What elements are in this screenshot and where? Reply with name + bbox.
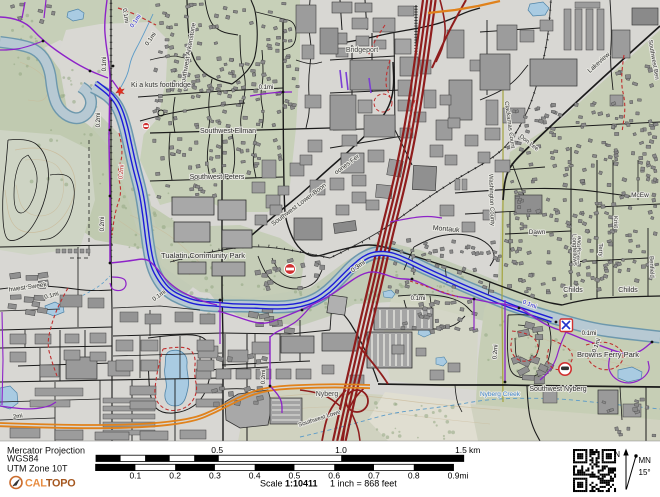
svg-text:Krist: Krist [612, 216, 618, 229]
svg-text:UTM Zone 10T: UTM Zone 10T [7, 464, 68, 474]
svg-text:Southwest Nyberg: Southwest Nyberg [529, 386, 586, 393]
svg-text:0.2mi: 0.2mi [118, 164, 125, 179]
svg-text:1.0: 1.0 [335, 445, 347, 455]
svg-text:0.3: 0.3 [209, 471, 221, 481]
svg-text:Browns Ferry Park: Browns Ferry Park [577, 350, 639, 359]
svg-text:km: km [469, 445, 480, 455]
svg-text:1 inch = 868 feet: 1 inch = 868 feet [330, 479, 397, 489]
svg-text:N: N [614, 450, 620, 459]
svg-text:Childs: Childs [563, 287, 583, 294]
svg-text:Childs: Childs [618, 287, 638, 294]
svg-text:Benfield: Benfield [648, 256, 655, 278]
svg-text:McEw: McEw [631, 192, 649, 199]
svg-text:Bridgeport: Bridgeport [346, 47, 378, 54]
svg-text:0.2mi: 0.2mi [100, 217, 106, 232]
svg-text:0.5: 0.5 [211, 445, 223, 455]
svg-text:0.1: 0.1 [129, 471, 141, 481]
svg-text:0.2mi: 0.2mi [261, 370, 268, 385]
svg-text:Longfellows: Longfellows [570, 234, 577, 266]
svg-text:Ki a kuts footbridge: Ki a kuts footbridge [131, 82, 191, 89]
svg-text:Terry: Terry [597, 243, 603, 257]
svg-text:Dawn: Dawn [529, 229, 546, 236]
svg-text:Nyberg: Nyberg [316, 391, 339, 398]
svg-text:mi: mi [460, 471, 469, 481]
svg-text:Tualatin Community Park: Tualatin Community Park [161, 251, 245, 260]
svg-text:Nyberg Creek: Nyberg Creek [480, 391, 521, 398]
svg-text:1.5: 1.5 [455, 445, 467, 455]
svg-text:Southwest Peters: Southwest Peters [190, 174, 245, 181]
svg-text:0.9: 0.9 [448, 471, 460, 481]
svg-text:0.1mi: 0.1mi [411, 296, 426, 302]
svg-text:0.2mi: 0.2mi [492, 344, 499, 359]
svg-text:0.1mi: 0.1mi [102, 57, 108, 72]
svg-text:0.1mi: 0.1mi [259, 85, 274, 91]
svg-text:MN: MN [639, 456, 652, 465]
svg-text:Southwest Ellman: Southwest Ellman [200, 128, 256, 135]
svg-text:WGS84: WGS84 [7, 454, 39, 464]
svg-text:0.2: 0.2 [169, 471, 181, 481]
svg-text:0.8: 0.8 [408, 471, 420, 481]
svg-text:Scale 1:10411: Scale 1:10411 [260, 479, 318, 489]
svg-text:15°: 15° [639, 468, 651, 477]
svg-text:0.1mi: 0.1mi [582, 331, 597, 337]
svg-text:0.2mi: 0.2mi [96, 113, 102, 128]
svg-text:CALTOPO: CALTOPO [25, 478, 75, 490]
